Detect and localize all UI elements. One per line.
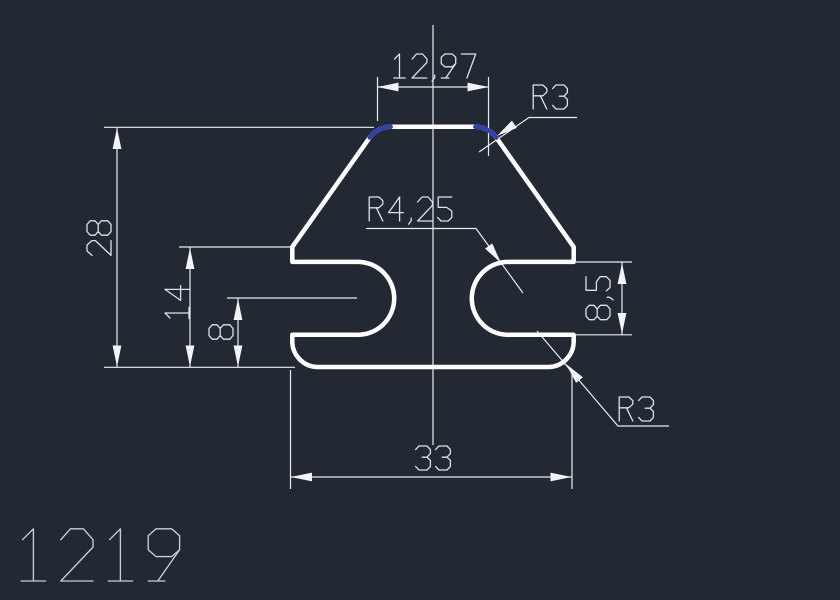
cad-drawing-canvas bbox=[0, 0, 840, 600]
drawing-background bbox=[0, 0, 840, 600]
